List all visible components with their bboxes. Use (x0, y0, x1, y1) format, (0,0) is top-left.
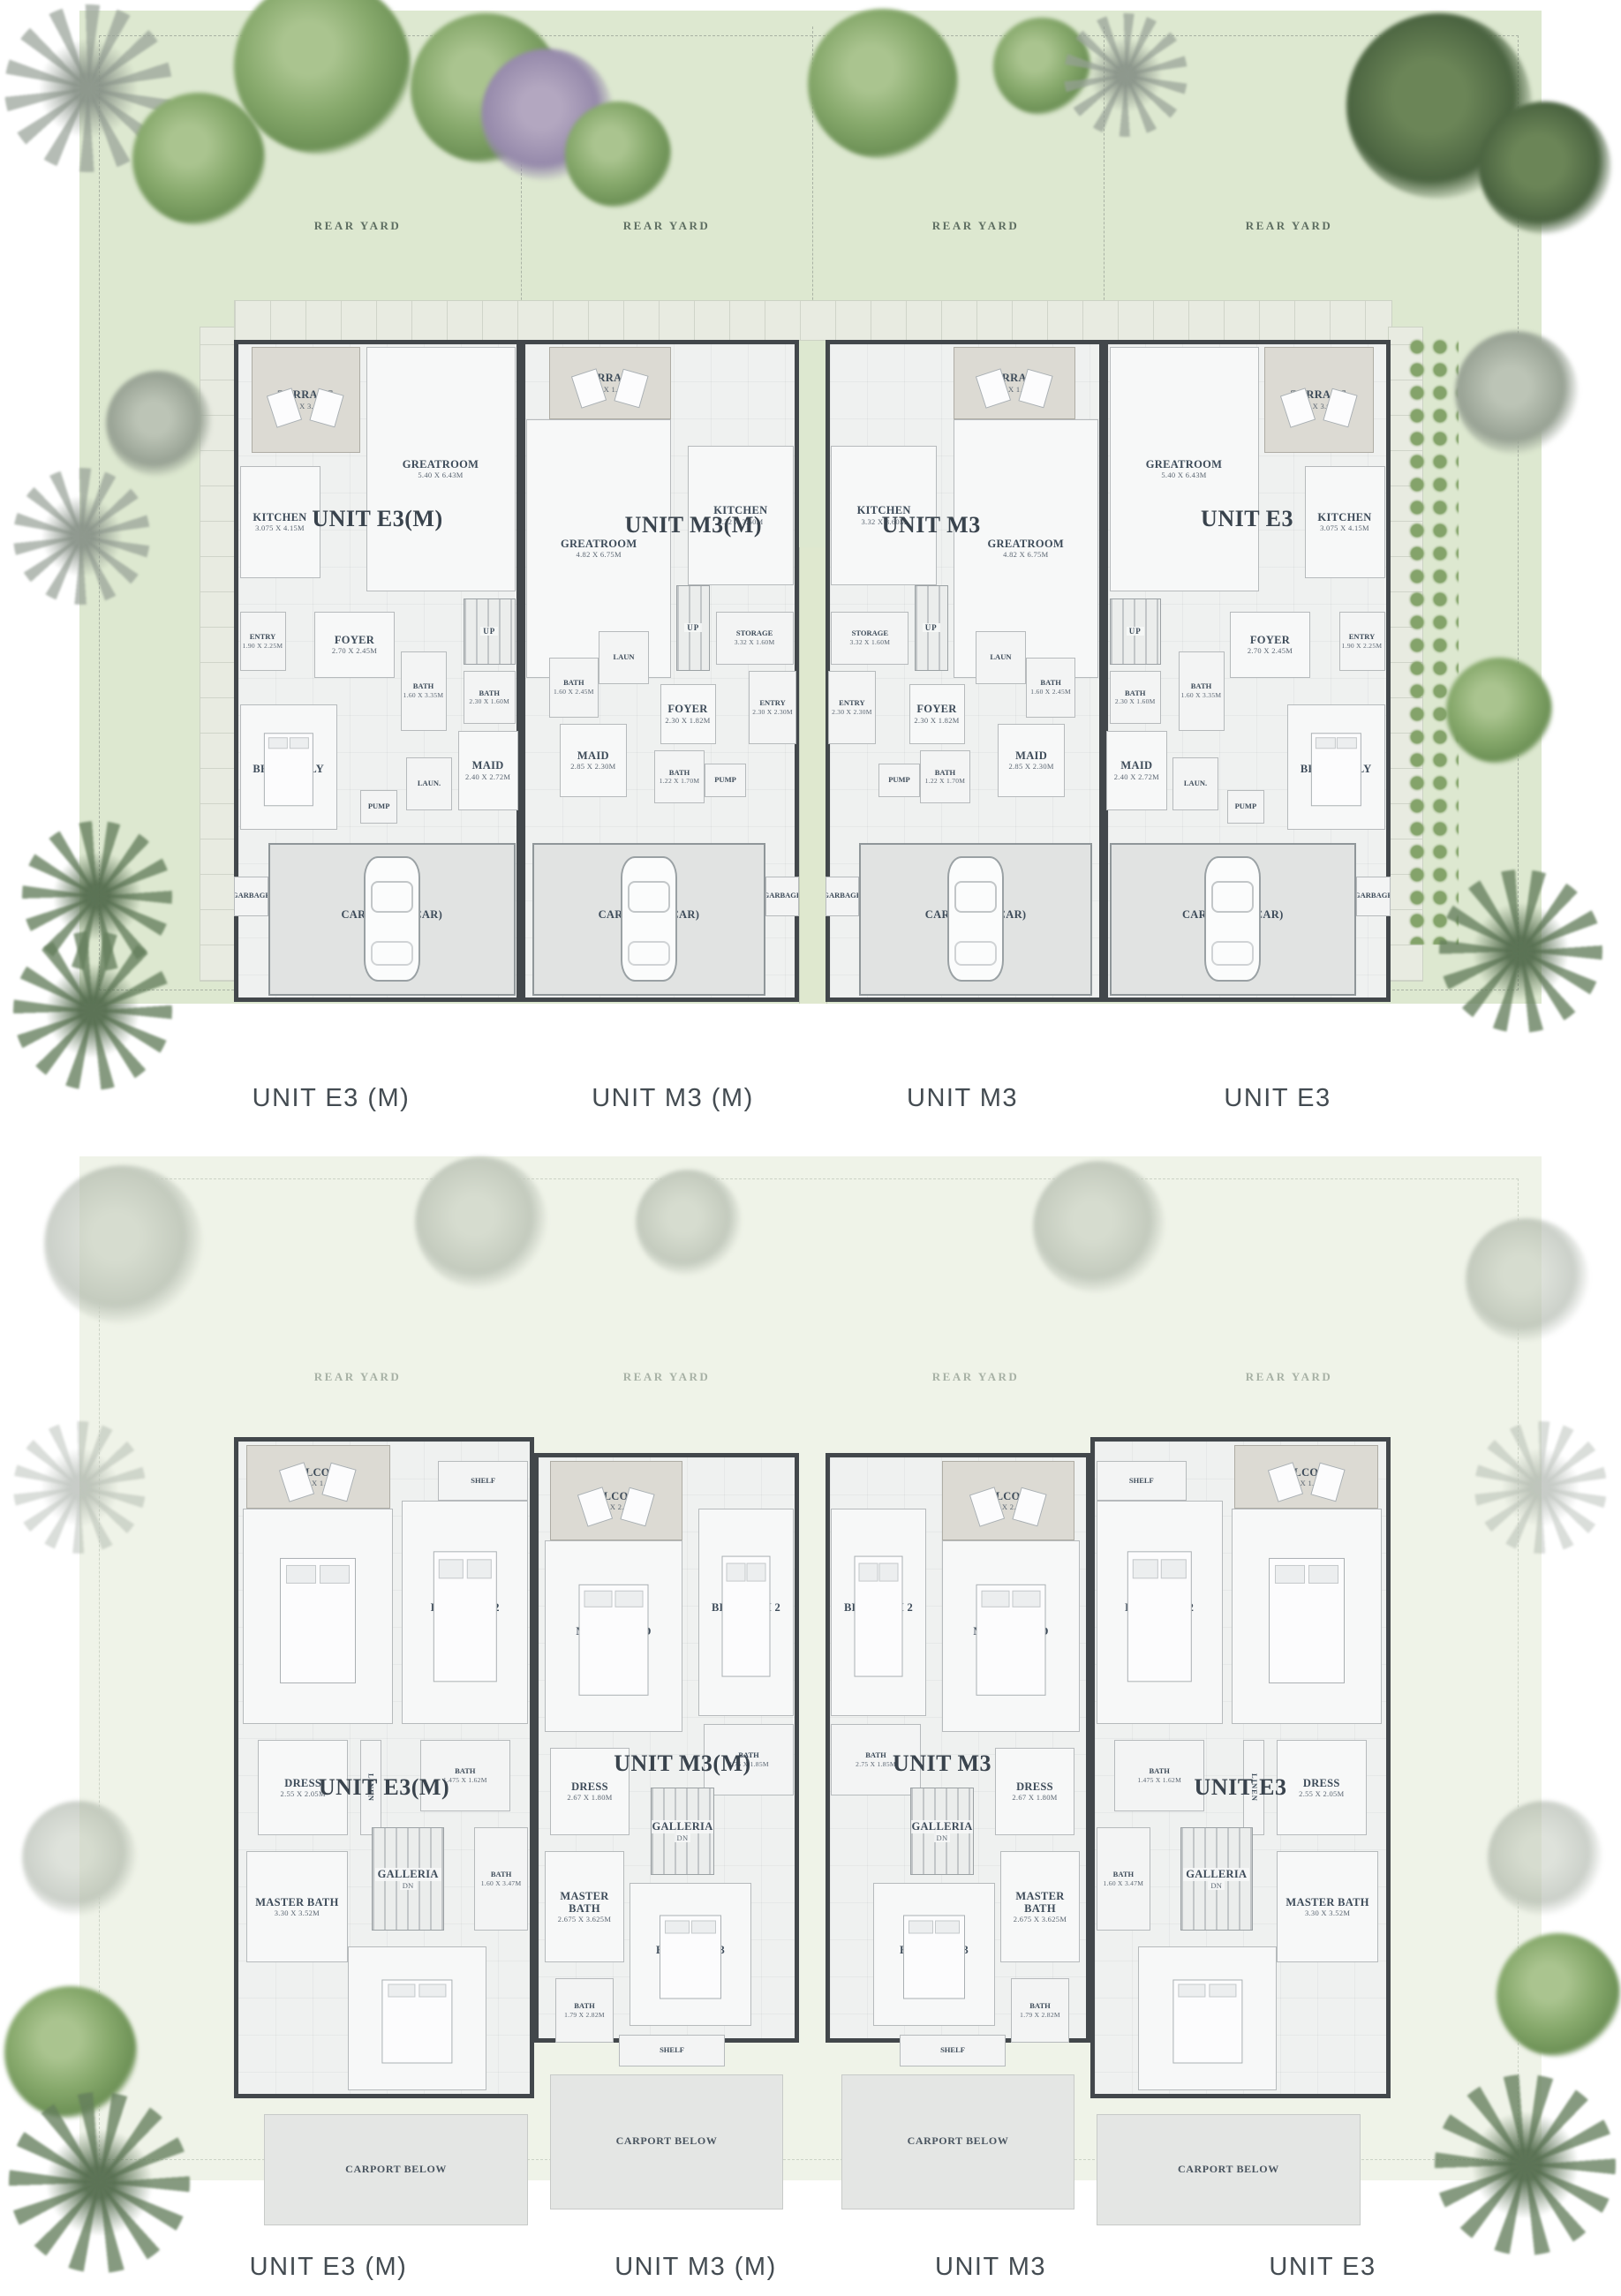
tree-icon (1488, 1801, 1602, 1916)
room-carport-below: CARPORT BELOW (550, 2074, 783, 2209)
room-label: KITCHEN (1317, 511, 1371, 523)
room-dimensions: 5.40 X 6.43M (418, 470, 463, 479)
room-label: BATH (491, 1871, 511, 1879)
room-bedroom-2: BEDROOM 24.10 X 3.45M (831, 1509, 926, 1716)
room-bath: BATH1.60 X 3.35M (1179, 651, 1225, 731)
chairs-icon (278, 1462, 358, 1502)
room-label: UP (480, 627, 498, 636)
chairs-icon (266, 388, 345, 428)
room-dimensions: 1.79 X 2.82M (564, 2011, 605, 2019)
room-master-bath: MASTER BATH3.30 X 3.52M (246, 1851, 349, 1962)
tree-icon (1497, 1933, 1620, 2057)
room-pump: PUMP (705, 764, 746, 797)
room-carport-2-car: CARPORT (2-CAR)6.00 X 6.00M (268, 843, 516, 996)
rear-yard-label: REAR YARD (623, 1370, 710, 1384)
room-dimensions: 1.79 X 2.82M (1020, 2011, 1060, 2019)
room-bath: BATH1.475 X 1.62M (1114, 1740, 1204, 1811)
room-label: ENTRY (1349, 633, 1375, 642)
room-master-bath: MASTER BATH3.30 X 3.52M (1277, 1851, 1379, 1962)
room-label: MASTER BATH (255, 1896, 338, 1908)
room-label: DRESS (284, 1777, 321, 1789)
room-entry: ENTRY2.30 X 2.30M (828, 671, 876, 744)
palm-tree-icon (13, 468, 150, 605)
room-label: BATH (1113, 1871, 1134, 1879)
room-label: GALLERIA (375, 1868, 441, 1880)
room-laun: LAUN. (1172, 757, 1218, 810)
palm-tree-icon (9, 2092, 190, 2273)
unit-name-label: UNIT M3(M) (614, 1752, 750, 1775)
tree-icon (415, 1156, 547, 1289)
room-carport-2-car: CARPORT (2-CAR)6.00 X 6.00M (532, 843, 766, 996)
room-bath: BATH1.79 X 2.82M (555, 1978, 614, 2042)
unit-name-label: UNIT E3(M) (312, 508, 442, 531)
room-label: PUMP (888, 776, 910, 785)
room-label: DRESS (1016, 1780, 1053, 1793)
room-dimensions: 3.32 X 1.60M (735, 638, 775, 646)
room-galleria: GALLERIADN (651, 1788, 714, 1875)
unit-plan-2: TERRACE4.35 X 1.25MGREATROOM4.82 X 6.75M… (521, 340, 799, 1002)
room-label: BATH (479, 689, 500, 698)
room-label: DRESS (571, 1780, 608, 1793)
bed-icon (903, 1916, 965, 1999)
room-garbage: GARBAGE (1356, 877, 1391, 916)
unit-name-label: UNIT E3(M) (319, 1776, 449, 1799)
unit-plan-3: BALCONY3.80 X 2.05MMASTER BED4.05 X 4.20… (826, 1437, 1090, 2233)
room-storage: STORAGE3.32 X 1.60M (716, 612, 794, 665)
room-dimensions: 1.90 X 2.25M (243, 642, 283, 650)
room-dimensions: 3.075 X 4.15M (1320, 523, 1369, 532)
room-balcony: BALCONY3.80 X 2.05M (550, 1461, 682, 1540)
room-label: GREATROOM (561, 538, 637, 550)
bed-icon (855, 1556, 903, 1677)
room-dimensions: 1.60 X 3.47M (1104, 1879, 1144, 1887)
room-dimensions: 2.70 X 2.45M (1248, 646, 1293, 655)
unit-caption-e3m: UNIT E3 (M) (253, 1084, 411, 1113)
unit-caption-m3m: UNIT M3 (M) (592, 1084, 754, 1113)
room-laun: LAUN. (406, 757, 452, 810)
room-label: BATH (1125, 689, 1145, 698)
tree-icon (106, 371, 212, 477)
tree-icon (132, 93, 265, 225)
unit-caption-e3: UNIT E3 (1269, 2253, 1376, 2282)
unit-caption-m3m: UNIT M3 (M) (614, 2253, 777, 2282)
room-label: SHELF (471, 1477, 495, 1486)
room-dimensions: 2.30 X 2.30M (832, 708, 872, 716)
room-label: LAUN (613, 653, 634, 662)
room-bath: BATH1.79 X 2.82M (1011, 1978, 1069, 2042)
car-icon (364, 856, 420, 982)
room-terrace: TERRACE4.35 X 1.25M (549, 347, 672, 420)
room-up: UP (1110, 598, 1162, 665)
room-label: LAUN. (418, 779, 441, 788)
room-label: SHELF (940, 2046, 965, 2055)
room-bedroom-2: BEDROOM 24.10 X 3.45M (698, 1509, 794, 1716)
room-terrace: TERRACE2.87 X 3.00M (252, 347, 361, 453)
room-dress: DRESS2.67 X 1.80M (995, 1748, 1074, 1835)
floor-plan-sheet: REAR YARD REAR YARD REAR YARD REAR YARD … (0, 0, 1621, 2296)
room-carport-below: CARPORT BELOW (841, 2074, 1074, 2209)
chairs-icon (1279, 388, 1359, 428)
room-dimensions: 2.75 X 1.85M (856, 1760, 896, 1768)
palm-tree-icon (1439, 869, 1602, 1033)
room-bedroom-2: BEDROOM 24.10 X 4.85M (402, 1501, 528, 1724)
room-label: UP (684, 623, 702, 632)
room-terrace: TERRACE4.35 X 1.25M (954, 347, 1076, 420)
room-label: MASTER BATH (1285, 1896, 1368, 1908)
room-label: SHELF (1129, 1477, 1154, 1486)
room-maid: MAID2.40 X 2.72M (1106, 731, 1166, 810)
room-entry: ENTRY1.90 X 2.25M (1339, 612, 1385, 672)
room-dimensions: 1.475 X 1.62M (1137, 1776, 1181, 1784)
room-maid: MAID2.40 X 2.72M (458, 731, 518, 810)
room-label: GARBAGE (765, 892, 799, 900)
room-bath: BATH1.22 X 1.70M (920, 750, 970, 803)
unit-plan-4: TERRACE2.87 X 3.00MGREATROOM5.40 X 6.43M… (1104, 340, 1391, 1002)
palm-tree-icon (13, 1421, 146, 1554)
room-foyer: FOYER2.70 X 2.45M (1230, 612, 1310, 678)
ground-floor-block: REAR YARD REAR YARD REAR YARD REAR YARD … (0, 0, 1621, 1139)
room-bath: BATH1.60 X 3.47M (474, 1827, 528, 1931)
bed-icon (722, 1556, 771, 1677)
rear-yard-label: REAR YARD (932, 1370, 1019, 1384)
room-dimensions: 2.67 X 1.80M (567, 1793, 612, 1802)
room-label: UP (1127, 627, 1144, 636)
room-master-bed: MASTER BED4.05 X 4.20M (545, 1540, 682, 1731)
room-label: BATH (935, 769, 955, 778)
room-dimensions: 2.55 X 2.05M (1299, 1789, 1344, 1798)
room-bath: BATH2.30 X 1.60M (464, 671, 516, 724)
room-pump: PUMP (360, 790, 397, 824)
palm-tree-icon (13, 931, 172, 1090)
room-terrace: TERRACE2.87 X 3.00M (1264, 347, 1374, 453)
room-label: FOYER (916, 703, 956, 715)
chairs-icon (1267, 1462, 1346, 1502)
room-balcony: BALCONY4.65 X 1.20M (246, 1445, 390, 1509)
room-shelf: SHELF (1097, 1461, 1187, 1501)
room-galleria: GALLERIADN (372, 1827, 444, 1931)
room-master-bed: MASTER BED4.075 X 5.075M (243, 1509, 393, 1724)
room-label: BATH (1029, 2002, 1050, 2011)
room-dimensions: 4.82 X 6.75M (1003, 550, 1048, 559)
room-dimensions: 2.67 X 1.80M (1012, 1793, 1057, 1802)
room-laun: LAUN (976, 631, 1026, 684)
tree-icon (1479, 102, 1611, 234)
unit-plan-3: TERRACE4.35 X 1.25MGREATROOM4.82 X 6.75M… (826, 340, 1104, 1002)
unit-name-label: UNIT E3 (1201, 508, 1293, 531)
room-dimensions: 1.60 X 3.35M (403, 691, 444, 699)
room-label: CARPORT BELOW (908, 2135, 1009, 2148)
bed-icon (579, 1585, 649, 1696)
car-icon (1204, 856, 1261, 982)
room-dimensions: DN (400, 1881, 417, 1890)
room-dimensions: 2.30 X 1.82M (914, 716, 959, 725)
rear-yard-label: REAR YARD (932, 219, 1019, 233)
unit-name-label: UNIT M3 (882, 514, 981, 537)
room-label: GREATROOM (988, 538, 1065, 550)
room-label: STORAGE (852, 629, 888, 638)
room-dimensions: 2.30 X 1.60M (469, 697, 509, 705)
unit-caption-e3: UNIT E3 (1224, 1084, 1331, 1113)
room-maid: MAID2.85 X 2.30M (560, 724, 627, 797)
car-icon (621, 856, 677, 982)
room-label: FOYER (335, 634, 374, 646)
room-dimensions: 2.675 X 3.625M (1014, 1915, 1067, 1923)
rear-yard-label: REAR YARD (1246, 219, 1332, 233)
tree-icon (808, 9, 958, 159)
palm-tree-icon (1474, 1421, 1607, 1554)
room-bedroom-3: BEDROOM 33.80 X 4.47M (873, 1883, 995, 2026)
room-dimensions: 2.70 X 2.45M (332, 646, 377, 655)
room-label: GALLERIA (1183, 1868, 1249, 1880)
room-dimensions: 1.60 X 2.45M (554, 688, 594, 696)
unit-name-label: UNIT E3 (1195, 1776, 1287, 1799)
room-label: MASTER BATH (1001, 1890, 1079, 1916)
room-label: BATH (1191, 682, 1211, 691)
room-storage: STORAGE3.32 X 1.60M (831, 612, 909, 665)
room-label: GALLERIA (910, 1820, 974, 1833)
room-foyer: FOYER2.30 X 1.82M (909, 684, 965, 744)
room-bath: BATH1.60 X 2.45M (1026, 658, 1076, 718)
room-guest-bed-family: GUEST BED/FAMILY3.075 X 3.80M (240, 704, 338, 831)
room-dimensions: 3.32 X 1.60M (850, 638, 891, 646)
tree-icon (1466, 1218, 1589, 1342)
room-shelf: SHELF (438, 1461, 528, 1501)
room-label: BATH (574, 2002, 594, 2011)
unit-caption-m3: UNIT M3 (935, 2253, 1046, 2282)
room-label: DRESS (1303, 1777, 1340, 1789)
room-shelf: SHELF (619, 2035, 725, 2066)
room-greatroom: GREATROOM5.40 X 6.43M (1110, 347, 1259, 592)
chairs-icon (969, 1487, 1048, 1527)
room-label: CARPORT BELOW (1178, 2164, 1279, 2176)
room-pump: PUMP (1227, 790, 1264, 824)
bed-icon (976, 1585, 1046, 1696)
room-dimensions: DN (675, 1833, 691, 1842)
car-icon (947, 856, 1004, 982)
unit-caption-e3m: UNIT E3 (M) (250, 2253, 408, 2282)
tree-icon (565, 102, 671, 207)
room-label: CARPORT BELOW (616, 2135, 718, 2148)
room-garbage: GARBAGE (826, 877, 859, 916)
central-walkway (799, 547, 827, 1004)
room-label: LAUN (990, 653, 1011, 662)
palm-tree-icon (1064, 13, 1187, 137)
room-dimensions: DN (934, 1833, 951, 1842)
bed-icon (1172, 1979, 1242, 2063)
room-master-bed: MASTER BED4.075 X 5.075M (1232, 1509, 1382, 1724)
room-dimensions: 2.85 X 2.30M (570, 762, 615, 771)
unit-name-label: UNIT M3(M) (625, 514, 762, 537)
room-bedroom-3: BEDROOM 34.275 X 4.42M (348, 1946, 486, 2089)
room-label: KITCHEN (253, 511, 306, 523)
chairs-icon (577, 1487, 656, 1527)
room-galleria: GALLERIADN (910, 1788, 974, 1875)
room-dimensions: 1.22 X 1.70M (925, 777, 966, 785)
room-maid: MAID2.85 X 2.30M (998, 724, 1065, 797)
unit-caption-m3: UNIT M3 (907, 1084, 1018, 1113)
room-carport-2-car: CARPORT (2-CAR)6.00 X 6.00M (859, 843, 1093, 996)
room-label: MAID (472, 759, 504, 772)
room-dimensions: 2.30 X 2.30M (752, 708, 793, 716)
room-bath: BATH2.30 X 1.60M (1110, 671, 1162, 724)
rear-yard-label: REAR YARD (314, 1370, 401, 1384)
room-label: STORAGE (736, 629, 773, 638)
room-foyer: FOYER2.70 X 2.45M (314, 612, 395, 678)
room-up: UP (676, 585, 710, 672)
room-label: FOYER (667, 703, 707, 715)
room-entry: ENTRY1.90 X 2.25M (240, 612, 286, 672)
room-dimensions: 1.60 X 3.47M (481, 1879, 522, 1887)
room-master-bath: MASTER BATH2.675 X 3.625M (545, 1851, 624, 1962)
room-balcony: BALCONY4.65 X 1.20M (1234, 1445, 1378, 1509)
room-label: BATH (1040, 679, 1060, 688)
unit-name-label: UNIT M3 (893, 1752, 991, 1775)
room-dimensions: 2.30 X 1.82M (665, 716, 710, 725)
paver-path (234, 300, 1392, 341)
room-label: GREATROOM (403, 458, 479, 470)
chairs-icon (975, 368, 1054, 409)
tree-icon (22, 1801, 137, 1916)
room-bedroom-3: BEDROOM 33.80 X 4.47M (630, 1883, 751, 2026)
room-dimensions: 1.475 X 1.62M (443, 1776, 487, 1784)
room-garbage: GARBAGE (765, 877, 799, 916)
room-dimensions: 4.82 X 6.75M (577, 550, 622, 559)
unit-plan-1: TERRACE2.87 X 3.00MGREATROOM5.40 X 6.43M… (234, 340, 521, 1002)
room-label: MAID (577, 749, 609, 762)
room-dimensions: 2.30 X 1.60M (1115, 697, 1156, 705)
room-label: ENTRY (250, 633, 275, 642)
room-label: UP (923, 623, 940, 632)
room-dimensions: 1.60 X 2.45M (1030, 688, 1071, 696)
room-label: MASTER BATH (546, 1890, 623, 1916)
room-entry: ENTRY2.30 X 2.30M (749, 671, 796, 744)
tree-icon (1446, 658, 1552, 764)
room-label: BATH (865, 1751, 886, 1760)
room-dimensions: 1.60 X 3.35M (1181, 691, 1222, 699)
palm-tree-icon (1435, 2074, 1616, 2255)
room-label: ENTRY (759, 699, 785, 708)
room-dimensions: 3.30 X 3.52M (275, 1908, 320, 1917)
room-balcony: BALCONY3.80 X 2.05M (942, 1461, 1074, 1540)
room-bedroom-3: BEDROOM 34.275 X 4.42M (1138, 1946, 1276, 2089)
room-label: GALLERIA (651, 1820, 714, 1833)
room-carport-below: CARPORT BELOW (264, 2114, 528, 2225)
room-bath: BATH1.60 X 2.45M (549, 658, 599, 718)
unit-plan-4: BALCONY4.65 X 1.20MSHELFMASTER BED4.075 … (1090, 1437, 1391, 2233)
tree-icon (1455, 331, 1579, 455)
room-laun: LAUN (599, 631, 649, 684)
room-label: FOYER (1250, 634, 1290, 646)
room-garbage: GARBAGE (234, 877, 268, 916)
room-dimensions: 2.675 X 3.625M (558, 1915, 611, 1923)
room-label: PUMP (368, 802, 390, 811)
room-label: PUMP (1235, 802, 1257, 811)
room-kitchen: KITCHEN3.075 X 4.15M (1305, 466, 1385, 579)
bed-icon (280, 1558, 356, 1683)
room-up: UP (464, 598, 516, 665)
room-bedroom-2: BEDROOM 24.10 X 4.85M (1097, 1501, 1223, 1724)
tree-icon (636, 1170, 742, 1276)
room-label: LAUN. (1184, 779, 1207, 788)
room-bath: BATH1.22 X 1.70M (654, 750, 705, 803)
room-shelf: SHELF (900, 2035, 1006, 2066)
room-dimensions: 1.22 X 1.70M (660, 777, 700, 785)
room-label: BATH (669, 769, 690, 778)
unit-plan-2: BALCONY3.80 X 2.05MMASTER BED4.05 X 4.20… (534, 1437, 799, 2233)
bed-icon (660, 1916, 721, 1999)
room-label: MAID (1120, 759, 1152, 772)
room-label: ENTRY (839, 699, 864, 708)
room-galleria: GALLERIADN (1180, 1827, 1253, 1931)
room-label: GREATROOM (1146, 458, 1223, 470)
hedge-column (1406, 335, 1459, 945)
room-up: UP (915, 585, 948, 672)
bed-icon (1269, 1558, 1345, 1683)
bed-icon (382, 1979, 452, 2063)
room-dimensions: DN (1208, 1881, 1225, 1890)
room-dimensions: 2.85 X 2.30M (1008, 762, 1053, 771)
room-label: GARBAGE (826, 892, 859, 900)
room-label: BATH (413, 682, 434, 691)
room-dimensions: 3.30 X 3.52M (1305, 1908, 1350, 1917)
room-label: GARBAGE (1356, 892, 1391, 900)
room-label: GARBAGE (234, 892, 268, 900)
room-label: BATH (1149, 1767, 1169, 1776)
room-guest-bed-family: GUEST BED/FAMILY3.075 X 3.80M (1287, 704, 1385, 831)
room-master-bed: MASTER BED4.05 X 4.20M (942, 1540, 1080, 1731)
room-carport-2-car: CARPORT (2-CAR)6.00 X 6.00M (1110, 843, 1357, 996)
chairs-icon (570, 368, 650, 409)
unit-plan-1: BALCONY4.65 X 1.20MSHELFMASTER BED4.075 … (234, 1437, 534, 2233)
room-label: BATH (455, 1767, 475, 1776)
tree-icon (44, 1165, 203, 1324)
room-foyer: FOYER2.30 X 1.82M (660, 684, 716, 744)
tree-icon (1033, 1161, 1165, 1293)
room-bath: BATH1.60 X 3.47M (1097, 1827, 1150, 1931)
first-floor-block: REAR YARD REAR YARD REAR YARD REAR YARD … (0, 1139, 1621, 2296)
room-label: PUMP (714, 776, 736, 785)
bed-icon (1127, 1552, 1191, 1682)
bed-icon (264, 733, 313, 806)
room-bath: BATH1.60 X 3.35M (401, 651, 447, 731)
rear-yard-label: REAR YARD (623, 219, 710, 233)
room-kitchen: KITCHEN3.075 X 4.15M (240, 466, 320, 579)
room-dimensions: 1.90 X 2.25M (1342, 642, 1383, 650)
room-carport-below: CARPORT BELOW (1097, 2114, 1361, 2225)
room-dimensions: 2.40 X 2.72M (465, 772, 510, 781)
room-label: CARPORT BELOW (345, 2164, 447, 2176)
room-label: SHELF (660, 2046, 684, 2055)
room-master-bath: MASTER BATH2.675 X 3.625M (1000, 1851, 1080, 1962)
room-greatroom: GREATROOM5.40 X 6.43M (366, 347, 516, 592)
room-dress: DRESS2.55 X 2.05M (1277, 1740, 1367, 1835)
room-dimensions: 2.40 X 2.72M (1114, 772, 1159, 781)
room-label: BATH (563, 679, 584, 688)
room-dimensions: 3.075 X 4.15M (255, 523, 305, 532)
room-label: MAID (1015, 749, 1047, 762)
rear-yard-label: REAR YARD (314, 219, 401, 233)
bed-icon (434, 1552, 497, 1682)
room-dimensions: 5.40 X 6.43M (1161, 470, 1206, 479)
bed-icon (1311, 733, 1361, 806)
rear-yard-label: REAR YARD (1246, 1370, 1332, 1384)
room-pump: PUMP (878, 764, 920, 797)
